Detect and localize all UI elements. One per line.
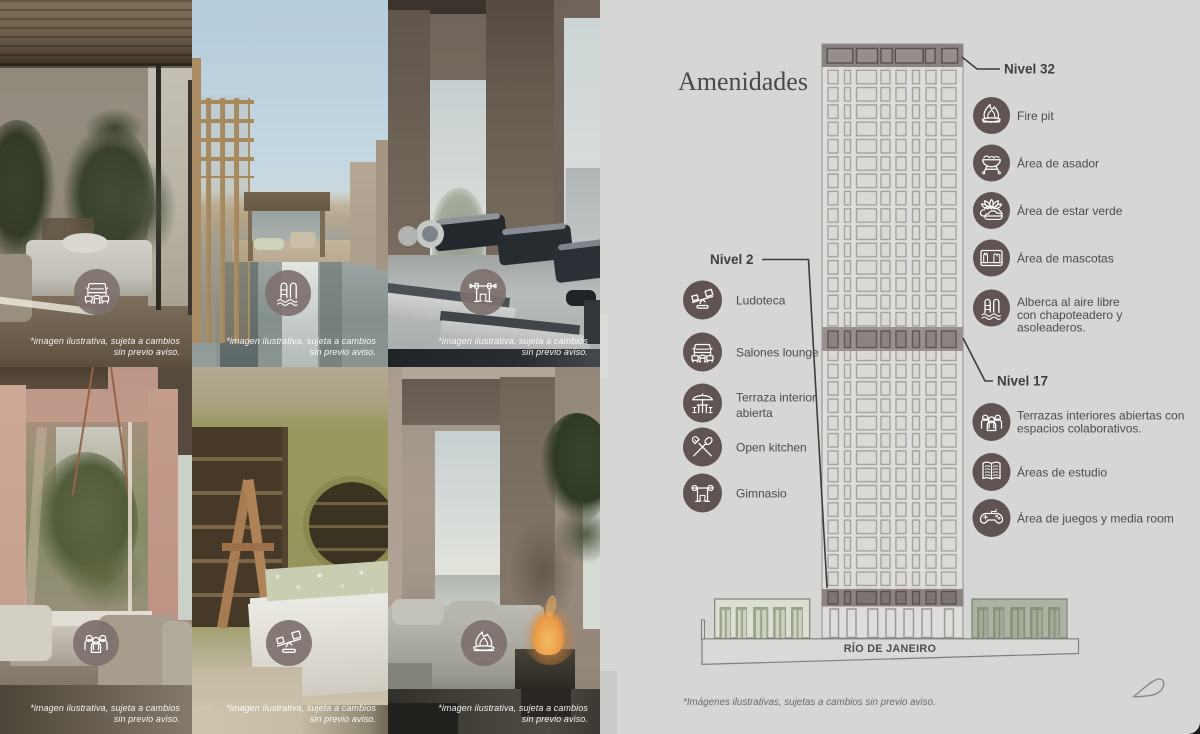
- svg-text:Nivel 32: Nivel 32: [1004, 62, 1055, 77]
- svg-text:Área de mascotas: Área de mascotas: [1017, 251, 1114, 266]
- svg-text:Áreas de estudio: Áreas de estudio: [1017, 465, 1107, 480]
- svg-text:Área de estar verde: Área de estar verde: [1017, 203, 1123, 218]
- svg-text:*Imágenes ilustrativas, sujeta: *Imágenes ilustrativas, sujetas a cambio…: [683, 697, 936, 708]
- svg-text:Terraza interior: Terraza interior: [736, 391, 816, 405]
- svg-text:espacios colaborativos.: espacios colaborativos.: [1017, 422, 1142, 436]
- svg-text:Terrazas interiores abiertas c: Terrazas interiores abiertas con: [1017, 409, 1184, 423]
- svg-text:Amenidades: Amenidades: [678, 67, 808, 96]
- svg-text:Nivel 2: Nivel 2: [710, 252, 754, 267]
- svg-text:Gimnasio: Gimnasio: [736, 487, 787, 501]
- svg-text:RÍO DE JANEIRO: RÍO DE JANEIRO: [844, 642, 936, 655]
- svg-text:Salones lounge: Salones lounge: [736, 346, 819, 360]
- svg-text:abierta: abierta: [736, 406, 773, 420]
- svg-text:Fire pit: Fire pit: [1017, 109, 1054, 123]
- svg-text:Open kitchen: Open kitchen: [736, 441, 807, 455]
- svg-text:Área de asador: Área de asador: [1017, 156, 1099, 171]
- svg-text:Ludoteca: Ludoteca: [736, 294, 786, 308]
- svg-text:asoleaderos.: asoleaderos.: [1017, 321, 1086, 335]
- svg-text:Nivel 17: Nivel 17: [997, 374, 1048, 389]
- svg-text:Área de juegos y media room: Área de juegos y media room: [1017, 511, 1174, 526]
